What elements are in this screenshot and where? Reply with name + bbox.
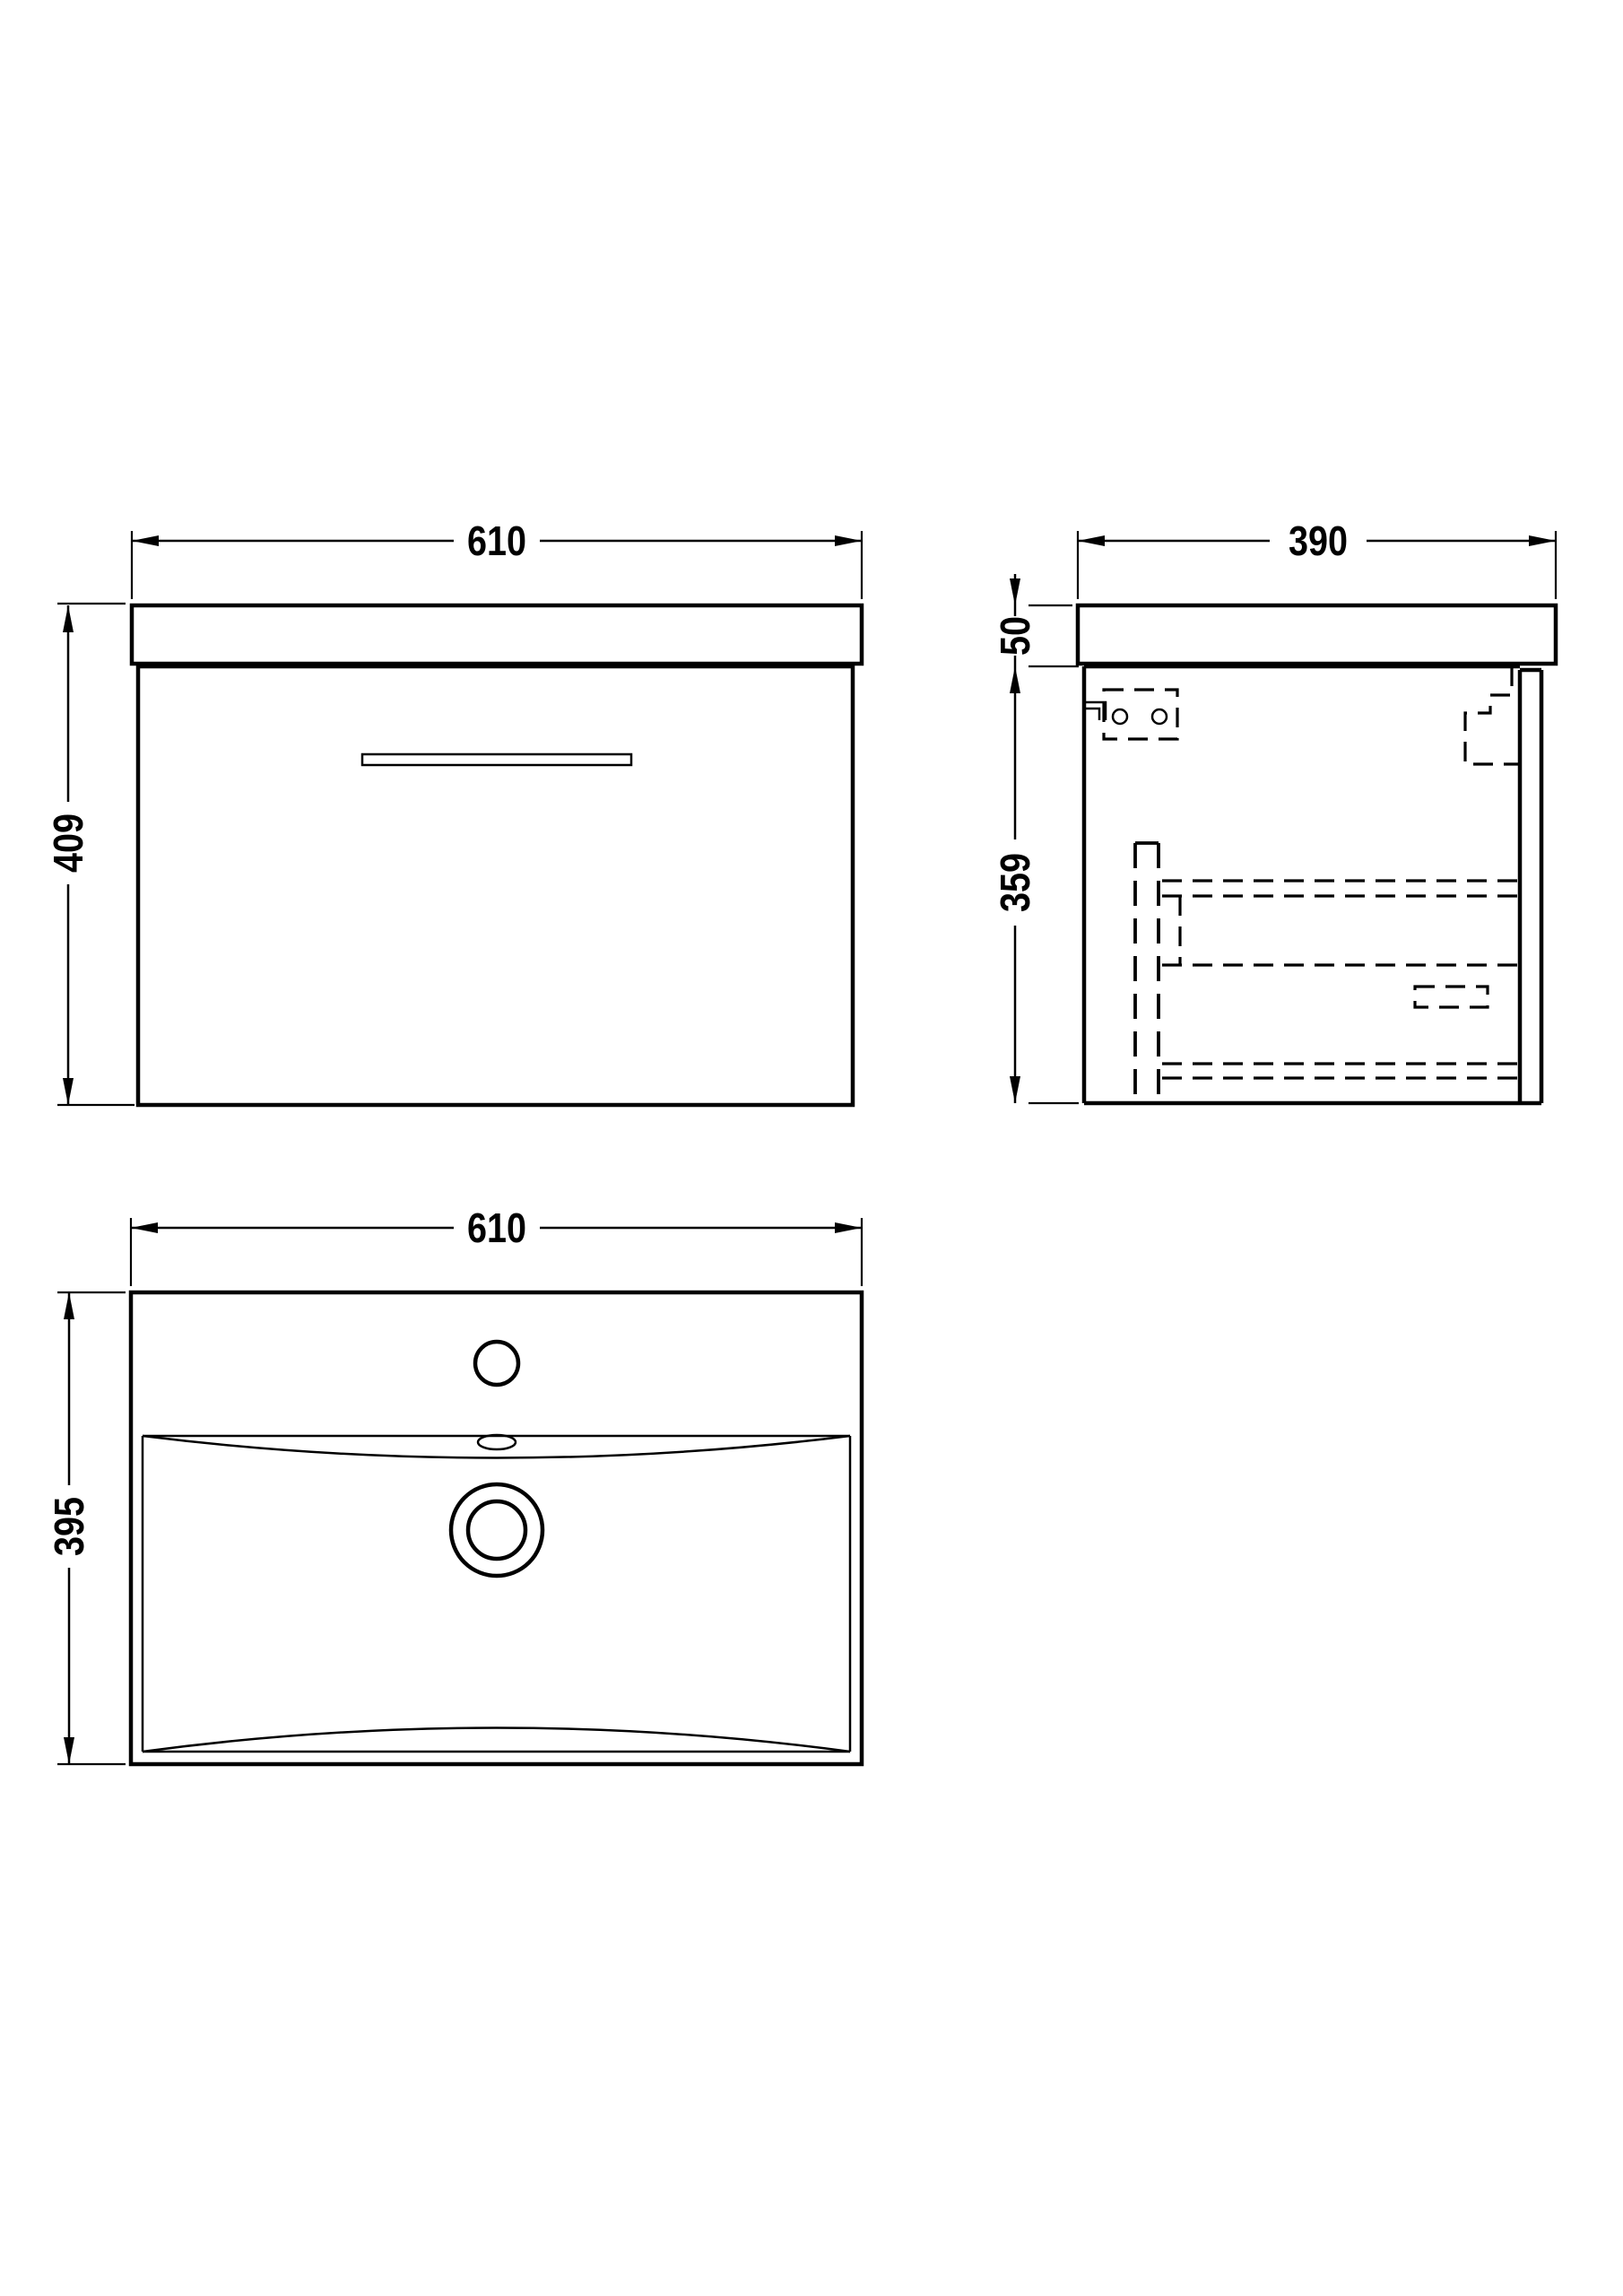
basin-outer-edge (131, 1292, 862, 1764)
plan-width-label: 610 (467, 1205, 526, 1251)
side-worktop-label: 50 (992, 616, 1038, 656)
plan-depth-dimension: 395 (46, 1292, 126, 1764)
side-height-dimensions: 50 359 (992, 574, 1079, 1103)
drawing-page: 610 409 390 (0, 0, 1623, 2296)
side-view: 390 50 359 (992, 517, 1556, 1103)
side-basin-top (1078, 605, 1556, 664)
tap-hole (475, 1342, 518, 1385)
plan-width-dimension: 610 (131, 1205, 862, 1286)
drawer-runner-clip (1415, 987, 1488, 1007)
waste-drain (451, 1484, 542, 1576)
front-height-label: 409 (45, 813, 91, 873)
front-cabinet (138, 666, 853, 1105)
front-height-dimension: 409 (45, 604, 135, 1105)
plan-depth-label: 395 (46, 1497, 92, 1556)
front-basin-top (132, 605, 862, 664)
bowl-back-slope (143, 1436, 850, 1458)
front-view: 610 409 (45, 517, 862, 1105)
drawer-front-hidden (1135, 843, 1159, 1102)
front-width-label: 610 (467, 517, 526, 564)
drawer-box-hidden (1162, 881, 1517, 1078)
plan-view: 610 395 (46, 1205, 862, 1764)
bowl-front-slope (143, 1728, 850, 1752)
side-cabinet (1084, 666, 1541, 1103)
drawer-handle (362, 754, 631, 765)
side-depth-label: 390 (1289, 517, 1348, 564)
hanging-rail-bracket (1465, 666, 1520, 764)
front-width-dimension: 610 (132, 517, 862, 599)
side-depth-dimension: 390 (1078, 517, 1556, 599)
side-cabinet-label: 359 (992, 853, 1038, 912)
overflow-slot (478, 1435, 516, 1449)
technical-drawing: 610 409 390 (0, 0, 1623, 2296)
wall-bracket (1084, 690, 1177, 739)
